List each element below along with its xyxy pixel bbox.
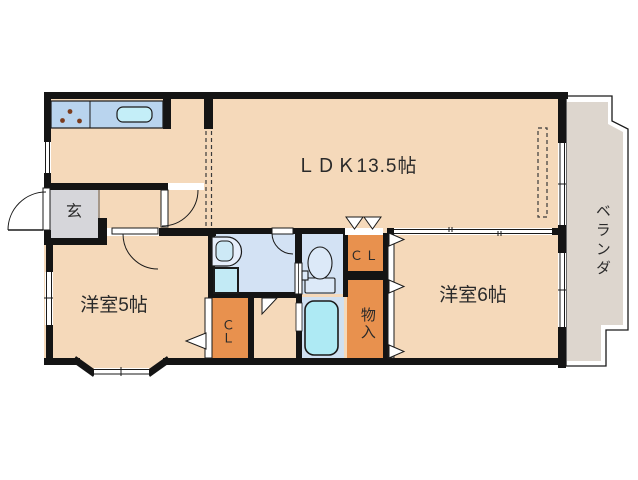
room-label-veranda: ベランダ <box>594 203 610 279</box>
washing-machine-pan-icon <box>214 268 238 293</box>
kitchen-sink-icon <box>117 107 152 122</box>
floor-plan-canvas: ＬＤＫ13.5帖 洋室5帖 洋室6帖 玄 ＣＬ ＣＬ 物入 ベランダ <box>0 0 638 480</box>
room-label-ldk: ＬＤＫ13.5帖 <box>297 157 418 177</box>
room-label-western6: 洋室6帖 <box>439 286 507 306</box>
bathtub-icon <box>305 301 338 355</box>
bathroom-door <box>296 303 302 331</box>
floor-plan-drawing <box>0 0 638 480</box>
room-label-closet-lower: ＣＬ <box>220 318 234 344</box>
room-label-closet-upper: ＣＬ <box>350 249 380 263</box>
room-label-western5: 洋室5帖 <box>80 296 148 316</box>
room-label-storage: 物入 <box>359 307 375 341</box>
front-door <box>8 188 50 230</box>
washbasin-icon <box>212 237 242 266</box>
kitchen-counter <box>51 101 163 128</box>
room-label-entrance: 玄 <box>66 205 82 222</box>
